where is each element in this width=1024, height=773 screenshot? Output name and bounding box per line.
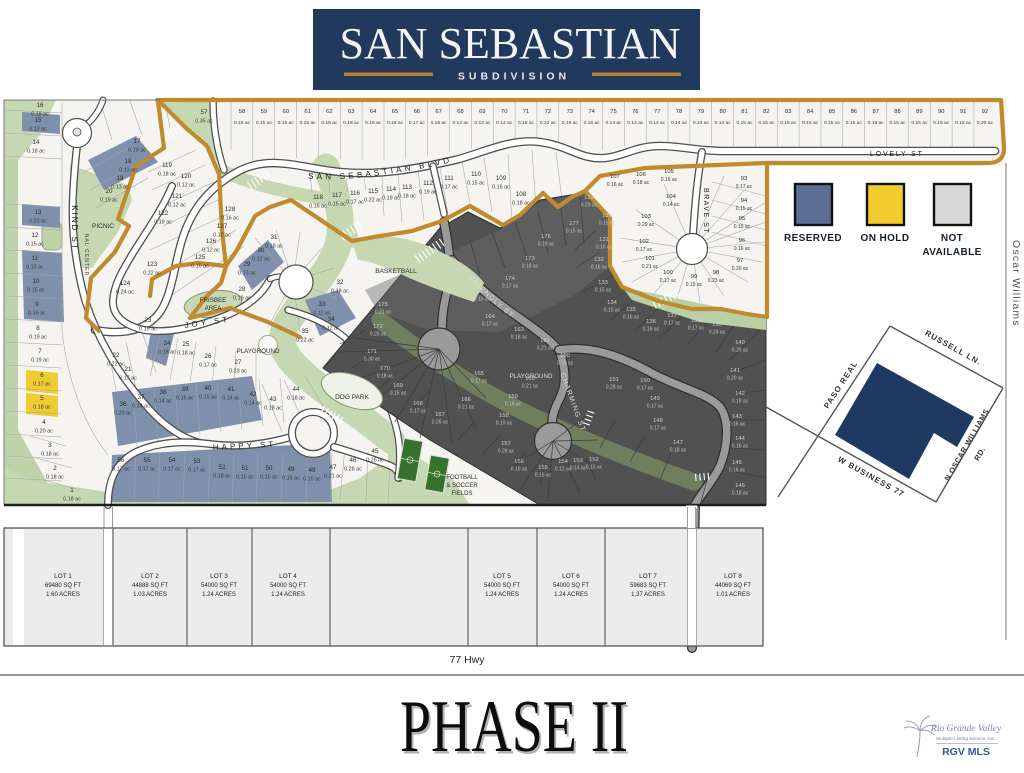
svg-text:0.30 ac: 0.30 ac xyxy=(364,357,381,363)
svg-text:86: 86 xyxy=(851,109,857,115)
svg-text:23: 23 xyxy=(145,317,152,324)
svg-text:SUBDIVISION: SUBDIVISION xyxy=(458,71,570,83)
svg-text:0.14 ac: 0.14 ac xyxy=(222,396,240,402)
svg-text:0.26 ac: 0.26 ac xyxy=(432,420,449,426)
svg-text:138: 138 xyxy=(691,318,701,324)
svg-text:0.24 ac: 0.24 ac xyxy=(709,330,726,336)
svg-text:126: 126 xyxy=(206,238,217,245)
svg-text:55: 55 xyxy=(144,457,151,464)
svg-text:0.17 ac: 0.17 ac xyxy=(482,322,499,328)
svg-text:0.22 ac: 0.22 ac xyxy=(29,219,47,225)
svg-text:0.15 ac: 0.15 ac xyxy=(734,224,751,230)
svg-text:78: 78 xyxy=(676,109,682,115)
svg-text:0.21 ac: 0.21 ac xyxy=(522,384,539,390)
svg-text:0.16 ac: 0.16 ac xyxy=(732,444,749,450)
svg-text:130: 130 xyxy=(602,213,612,219)
svg-text:144: 144 xyxy=(735,436,745,442)
svg-text:64: 64 xyxy=(370,109,377,115)
svg-text:141: 141 xyxy=(730,368,740,374)
svg-text:90: 90 xyxy=(938,109,944,115)
svg-text:PHASE II: PHASE II xyxy=(400,686,628,768)
svg-text:147: 147 xyxy=(673,440,683,446)
svg-text:0.17 ac: 0.17 ac xyxy=(688,326,705,332)
svg-text:181: 181 xyxy=(540,338,550,344)
svg-text:0.17 ac: 0.17 ac xyxy=(736,184,753,190)
svg-text:0.12 ac: 0.12 ac xyxy=(213,233,231,239)
svg-text:95: 95 xyxy=(739,216,745,222)
svg-text:0.18 ac: 0.18 ac xyxy=(321,120,338,126)
svg-text:167: 167 xyxy=(435,412,445,418)
svg-text:75: 75 xyxy=(610,109,616,115)
svg-text:24: 24 xyxy=(164,340,171,347)
svg-text:109: 109 xyxy=(496,175,507,182)
svg-text:0.19 ac: 0.19 ac xyxy=(365,120,382,126)
svg-text:0.17 ac: 0.17 ac xyxy=(660,278,677,284)
svg-text:Rio Grande Valley: Rio Grande Valley xyxy=(930,724,1002,734)
svg-text:142: 142 xyxy=(735,391,745,397)
svg-text:0.18 ac: 0.18 ac xyxy=(387,120,404,126)
svg-text:59683 SQ FT: 59683 SQ FT xyxy=(630,583,666,589)
svg-text:0.18 ac: 0.18 ac xyxy=(343,120,360,126)
svg-text:0.22 ac: 0.22 ac xyxy=(296,338,314,344)
svg-text:0.18 ac: 0.18 ac xyxy=(213,474,231,480)
svg-text:0.16 ac: 0.16 ac xyxy=(591,265,608,271)
svg-text:22: 22 xyxy=(113,352,120,359)
svg-text:0.14 ac: 0.14 ac xyxy=(154,399,172,405)
svg-text:0.15 ac: 0.15 ac xyxy=(278,120,295,126)
svg-text:146: 146 xyxy=(735,483,745,489)
svg-text:0.13 ac: 0.13 ac xyxy=(238,271,256,277)
svg-text:0.13 ac: 0.13 ac xyxy=(474,120,491,126)
svg-text:ON HOLD: ON HOLD xyxy=(861,233,910,244)
svg-text:52: 52 xyxy=(219,464,226,471)
svg-text:29: 29 xyxy=(244,261,251,268)
svg-text:12: 12 xyxy=(32,232,39,239)
svg-text:0.18 ac: 0.18 ac xyxy=(46,475,64,481)
svg-text:54000 SQ FT: 54000 SQ FT xyxy=(201,583,237,589)
svg-text:61: 61 xyxy=(304,109,310,115)
svg-text:7: 7 xyxy=(38,348,42,355)
svg-text:0.28 ac: 0.28 ac xyxy=(606,385,623,391)
svg-text:99: 99 xyxy=(691,274,697,280)
svg-text:57: 57 xyxy=(201,109,208,116)
svg-text:33: 33 xyxy=(319,301,326,308)
svg-text:0.29 ac: 0.29 ac xyxy=(638,222,655,228)
svg-text:115: 115 xyxy=(368,188,378,195)
svg-text:0.24 ac: 0.24 ac xyxy=(116,290,134,296)
svg-text:1.24 ACRES: 1.24 ACRES xyxy=(554,592,588,598)
svg-text:0.16 ac: 0.16 ac xyxy=(596,245,613,251)
svg-text:0.15 ac: 0.15 ac xyxy=(586,465,603,471)
svg-text:0.26 ac: 0.26 ac xyxy=(732,266,749,272)
svg-text:47: 47 xyxy=(330,464,337,471)
svg-text:0.18 ac: 0.18 ac xyxy=(670,448,687,454)
svg-text:163: 163 xyxy=(514,327,524,333)
svg-text:28: 28 xyxy=(239,286,246,293)
svg-text:0.19 ac: 0.19 ac xyxy=(474,297,491,303)
svg-text:0.15 ac: 0.15 ac xyxy=(303,477,321,483)
svg-text:34: 34 xyxy=(328,316,335,323)
svg-text:0.19 ac: 0.19 ac xyxy=(382,196,400,202)
svg-text:0.15 ac: 0.15 ac xyxy=(282,476,300,482)
svg-text:AVAILABLE: AVAILABLE xyxy=(922,247,981,258)
svg-text:56: 56 xyxy=(118,457,125,464)
svg-text:LOT 5: LOT 5 xyxy=(493,573,511,580)
svg-text:NAL CENTER: NAL CENTER xyxy=(83,234,89,277)
svg-text:0.18 ac: 0.18 ac xyxy=(177,351,195,357)
svg-text:0.15 ac: 0.15 ac xyxy=(27,288,45,294)
svg-text:0.18 ac: 0.18 ac xyxy=(234,120,251,126)
svg-text:0.17 ac: 0.17 ac xyxy=(440,185,458,191)
svg-text:17: 17 xyxy=(134,138,141,145)
svg-text:0.21 ac: 0.21 ac xyxy=(458,405,475,411)
svg-text:162: 162 xyxy=(477,289,487,295)
svg-text:0.16 ac: 0.16 ac xyxy=(623,315,640,321)
svg-text:0.15 ac: 0.15 ac xyxy=(780,120,797,126)
svg-text:0.21 ac: 0.21 ac xyxy=(537,346,554,352)
svg-text:0.18 ac: 0.18 ac xyxy=(63,497,81,503)
svg-text:102: 102 xyxy=(639,239,649,245)
svg-text:76: 76 xyxy=(632,109,638,115)
svg-text:164: 164 xyxy=(485,314,495,320)
svg-text:0.12 ac: 0.12 ac xyxy=(322,326,340,332)
svg-text:0.15 ac: 0.15 ac xyxy=(467,181,485,187)
svg-text:77: 77 xyxy=(654,109,660,115)
svg-text:0.19 ac: 0.19 ac xyxy=(29,335,47,341)
svg-text:93: 93 xyxy=(741,176,747,182)
svg-text:158: 158 xyxy=(499,413,509,419)
svg-text:89: 89 xyxy=(916,109,922,115)
svg-text:25: 25 xyxy=(183,341,190,348)
svg-text:6: 6 xyxy=(40,372,44,379)
svg-text:122: 122 xyxy=(158,210,169,217)
svg-text:0.13 ac: 0.13 ac xyxy=(452,120,469,126)
svg-text:67: 67 xyxy=(435,109,441,115)
svg-text:0.15 ac: 0.15 ac xyxy=(599,221,616,227)
svg-text:0.15 ac: 0.15 ac xyxy=(686,282,703,288)
svg-text:92: 92 xyxy=(982,109,988,115)
svg-text:1.01 ACRES: 1.01 ACRES xyxy=(716,592,750,598)
svg-text:0.17 ac: 0.17 ac xyxy=(119,376,137,382)
svg-text:0.18 ac: 0.18 ac xyxy=(158,172,176,178)
svg-text:LOT 8: LOT 8 xyxy=(724,573,742,580)
svg-text:0.16 ac: 0.16 ac xyxy=(643,327,660,333)
svg-text:0.15 ac: 0.15 ac xyxy=(911,120,928,126)
svg-text:0.35 ac: 0.35 ac xyxy=(195,119,213,125)
svg-text:0.15 ac: 0.15 ac xyxy=(431,120,448,126)
svg-text:1.24 ACRES: 1.24 ACRES xyxy=(202,592,236,598)
svg-text:0.20 ac: 0.20 ac xyxy=(727,376,744,382)
svg-text:0.16 ac: 0.16 ac xyxy=(221,216,239,222)
svg-text:LOT 2: LOT 2 xyxy=(141,573,159,580)
svg-text:DOG PARK: DOG PARK xyxy=(335,394,369,401)
svg-text:0.18 ac: 0.18 ac xyxy=(265,244,283,250)
svg-text:0.15 ac: 0.15 ac xyxy=(199,395,217,401)
svg-text:71: 71 xyxy=(523,109,529,115)
svg-text:RGV MLS: RGV MLS xyxy=(942,746,990,758)
svg-text:1: 1 xyxy=(70,487,74,494)
svg-text:39: 39 xyxy=(182,386,189,393)
svg-text:116: 116 xyxy=(350,190,360,197)
svg-text:133: 133 xyxy=(598,280,608,286)
svg-text:106: 106 xyxy=(636,172,646,178)
svg-text:10: 10 xyxy=(33,278,40,285)
svg-text:0.29 ac: 0.29 ac xyxy=(732,348,749,354)
svg-text:159: 159 xyxy=(508,394,518,400)
svg-text:66: 66 xyxy=(414,109,420,115)
svg-text:91: 91 xyxy=(960,109,966,115)
svg-text:0.13 ac: 0.13 ac xyxy=(29,127,47,133)
svg-text:16: 16 xyxy=(37,102,44,109)
svg-text:134: 134 xyxy=(607,300,617,306)
svg-text:0.17 ac: 0.17 ac xyxy=(471,379,488,385)
svg-text:0.18 ac: 0.18 ac xyxy=(522,264,539,270)
svg-text:0.17 ac: 0.17 ac xyxy=(188,468,206,474)
svg-text:36: 36 xyxy=(120,401,127,408)
svg-text:88: 88 xyxy=(894,109,900,115)
svg-text:0.19 ac: 0.19 ac xyxy=(496,421,513,427)
svg-text:135: 135 xyxy=(626,307,636,313)
svg-text:0.20 ac: 0.20 ac xyxy=(977,120,994,126)
svg-text:0.16 ac: 0.16 ac xyxy=(492,185,510,191)
svg-text:0.18 ac: 0.18 ac xyxy=(518,120,535,126)
svg-text:0.16 ac: 0.16 ac xyxy=(734,246,751,252)
svg-text:FOOTBALL: FOOTBALL xyxy=(446,475,478,481)
svg-text:0.17 ac: 0.17 ac xyxy=(33,382,51,388)
svg-text:14: 14 xyxy=(33,139,40,146)
svg-text:48: 48 xyxy=(309,467,316,474)
svg-text:3: 3 xyxy=(48,442,52,449)
svg-text:0.14 ac: 0.14 ac xyxy=(693,120,710,126)
svg-text:0.28 ac: 0.28 ac xyxy=(344,467,362,473)
svg-text:26: 26 xyxy=(205,353,212,360)
svg-text:128: 128 xyxy=(225,206,236,213)
svg-text:0.16 ac: 0.16 ac xyxy=(191,264,209,270)
svg-text:PLAYGROUND: PLAYGROUND xyxy=(237,348,280,355)
svg-text:FIELDS: FIELDS xyxy=(451,491,472,497)
svg-text:44888 SQ FT: 44888 SQ FT xyxy=(132,583,168,589)
svg-text:136: 136 xyxy=(646,319,656,325)
svg-text:112: 112 xyxy=(423,180,433,187)
svg-text:110: 110 xyxy=(471,171,481,178)
svg-text:0.17 ac: 0.17 ac xyxy=(637,386,654,392)
svg-text:44069 SQ FT: 44069 SQ FT xyxy=(715,583,751,589)
svg-text:0.15 ac: 0.15 ac xyxy=(846,120,863,126)
svg-text:0.22 ac: 0.22 ac xyxy=(364,198,382,204)
svg-text:42: 42 xyxy=(250,391,257,398)
svg-text:101: 101 xyxy=(645,256,655,262)
svg-text:0.20 ac: 0.20 ac xyxy=(557,361,574,367)
svg-text:0.15 ac: 0.15 ac xyxy=(176,396,194,402)
svg-text:176: 176 xyxy=(541,234,551,240)
svg-text:27: 27 xyxy=(235,359,242,366)
svg-text:124: 124 xyxy=(120,280,131,287)
svg-text:21: 21 xyxy=(125,366,132,373)
svg-text:0.16 ac: 0.16 ac xyxy=(505,402,522,408)
svg-text:0.13 ac: 0.13 ac xyxy=(119,168,137,174)
svg-text:114: 114 xyxy=(386,186,396,193)
svg-text:173: 173 xyxy=(525,256,535,262)
svg-text:0.19 ac: 0.19 ac xyxy=(31,358,49,364)
svg-text:83: 83 xyxy=(785,109,791,115)
svg-text:0.22 ac: 0.22 ac xyxy=(143,271,161,277)
svg-text:97: 97 xyxy=(737,258,743,264)
svg-text:0.15 ac: 0.15 ac xyxy=(736,120,753,126)
svg-text:4: 4 xyxy=(42,419,46,426)
svg-text:AREA: AREA xyxy=(205,305,223,312)
svg-text:175: 175 xyxy=(378,302,388,308)
svg-text:31: 31 xyxy=(271,234,278,241)
svg-text:FRISBEE: FRISBEE xyxy=(200,297,226,304)
svg-text:0.15 ac: 0.15 ac xyxy=(535,473,552,479)
svg-text:152: 152 xyxy=(589,457,599,463)
svg-text:0.18 ac: 0.18 ac xyxy=(41,452,59,458)
svg-text:BASKETBALL: BASKETBALL xyxy=(375,268,417,275)
svg-text:111: 111 xyxy=(444,175,454,182)
svg-text:123: 123 xyxy=(147,261,158,268)
svg-text:LOT 4: LOT 4 xyxy=(279,573,297,580)
svg-text:117: 117 xyxy=(332,192,342,199)
svg-text:72: 72 xyxy=(545,109,551,115)
svg-text:0.15 ac: 0.15 ac xyxy=(736,206,753,212)
svg-text:156: 156 xyxy=(514,459,524,465)
svg-text:153: 153 xyxy=(573,458,583,464)
svg-text:0.19 ac: 0.19 ac xyxy=(128,148,146,154)
svg-text:0.18 ac: 0.18 ac xyxy=(511,335,528,341)
svg-text:0.17 ac: 0.17 ac xyxy=(346,200,364,206)
svg-text:0.14 ac: 0.14 ac xyxy=(715,120,732,126)
svg-text:0.15 ac: 0.15 ac xyxy=(824,120,841,126)
svg-text:43: 43 xyxy=(270,396,277,403)
svg-text:54000 SQ FT: 54000 SQ FT xyxy=(553,583,589,589)
svg-text:0.17 ac: 0.17 ac xyxy=(664,321,681,327)
svg-text:69: 69 xyxy=(479,109,485,115)
svg-text:125: 125 xyxy=(195,254,206,261)
svg-text:1.24 ACRES: 1.24 ACRES xyxy=(271,592,305,598)
svg-text:54000 SQ FT: 54000 SQ FT xyxy=(270,583,306,589)
svg-text:0.17 ac: 0.17 ac xyxy=(636,247,653,253)
svg-text:0.12 ac: 0.12 ac xyxy=(177,183,195,189)
svg-text:PICNIC: PICNIC xyxy=(92,223,114,230)
svg-text:80: 80 xyxy=(719,109,725,115)
svg-text:0.13 ac: 0.13 ac xyxy=(111,185,129,191)
svg-text:0.14 ac: 0.14 ac xyxy=(649,120,666,126)
svg-text:Oscar Williams: Oscar Williams xyxy=(1010,240,1022,327)
svg-text:174: 174 xyxy=(505,276,515,282)
svg-text:169: 169 xyxy=(393,383,403,389)
svg-text:105: 105 xyxy=(664,169,674,175)
svg-text:0.16 ac: 0.16 ac xyxy=(28,311,46,317)
svg-text:32: 32 xyxy=(337,279,344,286)
svg-text:0.14 ac: 0.14 ac xyxy=(244,401,262,407)
svg-text:LOT 1: LOT 1 xyxy=(54,573,72,580)
svg-text:154: 154 xyxy=(558,459,568,465)
svg-text:LOT 7: LOT 7 xyxy=(639,573,657,580)
svg-text:1.37 ACRES: 1.37 ACRES xyxy=(631,592,665,598)
svg-text:0.12 ac: 0.12 ac xyxy=(202,248,220,254)
svg-text:59: 59 xyxy=(261,109,267,115)
svg-text:11: 11 xyxy=(32,255,39,262)
svg-text:54000 SQ FT: 54000 SQ FT xyxy=(484,583,520,589)
svg-text:KIND ST: KIND ST xyxy=(70,205,79,251)
svg-text:84: 84 xyxy=(807,109,814,115)
svg-text:73: 73 xyxy=(567,109,573,115)
svg-text:108: 108 xyxy=(516,191,527,198)
svg-text:49: 49 xyxy=(288,466,295,473)
svg-text:157: 157 xyxy=(501,441,511,447)
svg-text:0.15 ac: 0.15 ac xyxy=(260,475,278,481)
svg-text:0.15 ac: 0.15 ac xyxy=(328,202,346,208)
svg-text:0.19 ac: 0.19 ac xyxy=(419,190,437,196)
svg-text:37: 37 xyxy=(138,394,145,401)
svg-text:100: 100 xyxy=(663,270,673,276)
svg-text:LOVELY ST: LOVELY ST xyxy=(870,151,924,158)
svg-text:NOT: NOT xyxy=(941,233,963,244)
svg-text:139: 139 xyxy=(712,322,722,328)
svg-text:82: 82 xyxy=(763,109,769,115)
svg-text:0.19 ac: 0.19 ac xyxy=(511,467,528,473)
svg-text:0.19 ac: 0.19 ac xyxy=(538,242,555,248)
svg-text:0.19 ac: 0.19 ac xyxy=(154,220,172,226)
svg-text:0.18 ac: 0.18 ac xyxy=(398,194,416,200)
svg-text:40: 40 xyxy=(205,385,212,392)
svg-text:18: 18 xyxy=(125,158,132,165)
svg-text:0.15 ac: 0.15 ac xyxy=(256,120,273,126)
svg-text:SAN SEBASTIAN: SAN SEBASTIAN xyxy=(339,19,680,68)
svg-text:1.03 ACRES: 1.03 ACRES xyxy=(133,592,167,598)
svg-text:2: 2 xyxy=(53,465,57,472)
svg-text:0.18 ac: 0.18 ac xyxy=(584,120,601,126)
svg-text:0.18 ac: 0.18 ac xyxy=(732,491,749,497)
svg-text:120: 120 xyxy=(181,173,192,180)
svg-text:0.15 ac: 0.15 ac xyxy=(566,229,583,235)
svg-text:149: 149 xyxy=(650,396,660,402)
svg-text:1.60 ACRES: 1.60 ACRES xyxy=(46,592,80,598)
svg-text:0.18 ac: 0.18 ac xyxy=(264,406,282,412)
svg-text:20: 20 xyxy=(106,188,113,195)
svg-text:0.14 ac: 0.14 ac xyxy=(132,404,150,410)
svg-text:113: 113 xyxy=(402,184,412,191)
svg-text:62: 62 xyxy=(326,109,332,115)
svg-text:140: 140 xyxy=(735,340,745,346)
svg-text:160: 160 xyxy=(525,376,535,382)
svg-text:63: 63 xyxy=(348,109,354,115)
svg-text:38: 38 xyxy=(160,389,167,396)
svg-text:177: 177 xyxy=(569,221,579,227)
svg-text:0.17 ac: 0.17 ac xyxy=(409,120,426,126)
svg-text:0.12 ac: 0.12 ac xyxy=(555,467,572,473)
svg-text:58: 58 xyxy=(239,109,245,115)
svg-text:0.18 ac: 0.18 ac xyxy=(633,180,650,186)
svg-text:0.17 ac: 0.17 ac xyxy=(112,467,130,473)
svg-text:0.18 ac: 0.18 ac xyxy=(512,201,530,207)
svg-text:& SOCCER: & SOCCER xyxy=(446,483,478,489)
svg-text:0.14 ac: 0.14 ac xyxy=(663,202,680,208)
svg-text:60: 60 xyxy=(282,109,288,115)
svg-text:0.17 ac: 0.17 ac xyxy=(163,467,181,473)
svg-text:0.20 ac: 0.20 ac xyxy=(114,411,132,417)
svg-text:1.24 ACRES: 1.24 ACRES xyxy=(485,592,519,598)
svg-text:170: 170 xyxy=(380,366,390,372)
svg-text:77 Hwy: 77 Hwy xyxy=(449,654,485,666)
svg-text:0.15 ac: 0.15 ac xyxy=(955,120,972,126)
svg-text:45: 45 xyxy=(372,448,379,455)
svg-text:0.18 ac: 0.18 ac xyxy=(377,374,394,380)
svg-text:69480 SQ FT: 69480 SQ FT xyxy=(45,583,81,589)
svg-text:0.15 ac: 0.15 ac xyxy=(236,475,254,481)
svg-text:54: 54 xyxy=(169,457,176,464)
svg-text:0.15 ac: 0.15 ac xyxy=(802,120,819,126)
